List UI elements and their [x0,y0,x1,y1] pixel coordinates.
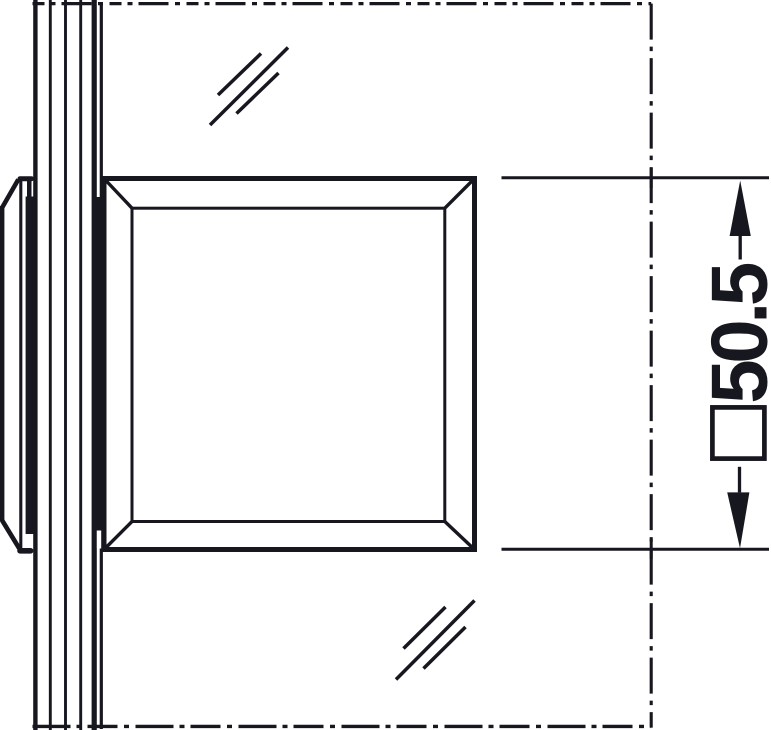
svg-text:50.5: 50.5 [695,263,771,404]
